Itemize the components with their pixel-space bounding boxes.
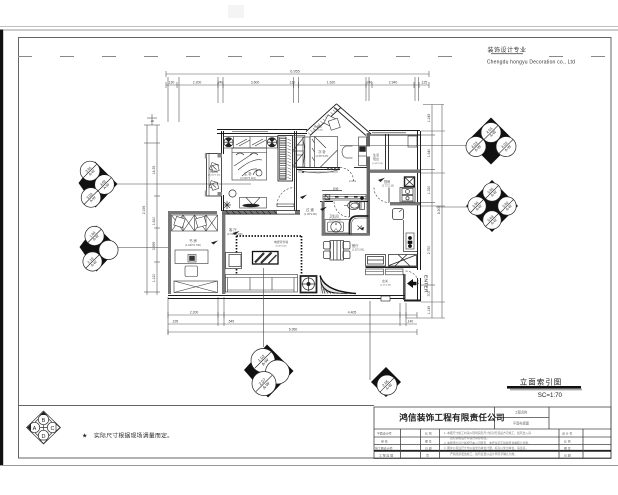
svg-text:日 期: 日 期 xyxy=(564,453,571,458)
svg-text:电视背景墙: 电视背景墙 xyxy=(274,240,288,244)
svg-text:比 例: 比 例 xyxy=(564,439,571,444)
svg-text:厨房: 厨房 xyxy=(384,179,390,184)
svg-text:次 卧: 次 卧 xyxy=(318,149,326,154)
svg-text:主 卧: 主 卧 xyxy=(244,171,252,176)
svg-text:书 房: 书 房 xyxy=(189,238,197,243)
svg-text:休闲角: 休闲角 xyxy=(314,125,322,129)
svg-text:6.950: 6.950 xyxy=(289,328,298,332)
svg-text:1.145: 1.145 xyxy=(427,306,431,315)
svg-text:日 期: 日 期 xyxy=(425,446,432,451)
svg-text:阳台: 阳台 xyxy=(373,156,379,161)
svg-text:(1.05*2.80): (1.05*2.80) xyxy=(304,212,317,216)
svg-text:C: C xyxy=(51,426,55,432)
svg-text:装饰设计专业: 装饰设计专业 xyxy=(487,46,526,54)
svg-text:审 核: 审 核 xyxy=(381,439,388,444)
svg-text:(1.52*2.60): (1.52*2.60) xyxy=(329,219,341,222)
svg-text:14.35: 14.35 xyxy=(152,166,156,175)
svg-text:.130: .130 xyxy=(289,81,296,85)
svg-text:(1.30*1.90): (1.30*1.90) xyxy=(352,248,364,251)
svg-text:2.195: 2.195 xyxy=(142,206,146,215)
svg-text:工 程 监 理: 工 程 监 理 xyxy=(379,453,393,458)
svg-text:★: ★ xyxy=(82,433,88,440)
svg-text:.130: .130 xyxy=(168,81,175,85)
svg-text:D: D xyxy=(42,434,46,440)
svg-text:1.330: 1.330 xyxy=(427,186,431,195)
svg-text:2.200: 2.200 xyxy=(193,81,202,85)
svg-text:工程名称: 工程名称 xyxy=(515,410,529,415)
svg-text:A: A xyxy=(33,426,37,432)
svg-text:.20: .20 xyxy=(150,119,155,123)
svg-text:(1.72*2.10): (1.72*2.10) xyxy=(382,184,394,187)
svg-text:B: B xyxy=(42,418,46,424)
svg-text:2.750: 2.750 xyxy=(427,246,431,255)
svg-text:页: 页 xyxy=(426,454,429,458)
svg-text:3. 图中に标注尺寸均以毫米为单位计量，标高以米为单位，请注: 3. 图中に标注尺寸均以毫米为单位计量，标高以米为单位，请注意。 xyxy=(444,446,528,450)
svg-text:设 计 号: 设 计 号 xyxy=(562,431,572,436)
svg-text:餐厅: 餐厅 xyxy=(352,243,359,248)
svg-text:(3.00*0.30): (3.00*0.30) xyxy=(276,245,287,247)
svg-text:1.810: 1.810 xyxy=(152,217,156,226)
svg-text:3.995: 3.995 xyxy=(152,242,156,251)
svg-text:鸿信装饰工程有限责任公司: 鸿信装饰工程有限责任公司 xyxy=(399,412,505,423)
svg-text:图 号: 图 号 xyxy=(564,446,571,451)
svg-text:.195: .195 xyxy=(172,320,179,324)
svg-text:严禁随意更改施工，如有变更以设计师签字确认为准。: 严禁随意更改施工，如有变更以设计师签字确认为准。 xyxy=(450,452,517,456)
svg-text:平面布置图: 平面布置图 xyxy=(513,421,529,426)
svg-text:(0.620*2.60): (0.620*2.60) xyxy=(208,175,220,177)
svg-text:比 例: 比 例 xyxy=(425,431,432,436)
svg-text:1.620: 1.620 xyxy=(327,81,336,85)
svg-text:图 号: 图 号 xyxy=(425,439,432,444)
svg-text:2.940: 2.940 xyxy=(389,81,398,85)
svg-text:2. 本图纸の设计版权归本公司所有，未经许可不得擅自复制转让: 2. 本图纸の设计版权归本公司所有，未经许可不得擅自复制转让使用。 xyxy=(444,441,531,445)
svg-text:(2.56*3.05): (2.56*3.05) xyxy=(316,154,329,158)
svg-text:(0.60*0.60): (0.60*0.60) xyxy=(313,129,323,131)
svg-text:.125: .125 xyxy=(421,81,428,85)
svg-text:1.245: 1.245 xyxy=(427,114,431,123)
svg-text:1.640: 1.640 xyxy=(427,149,431,158)
svg-text:3.600: 3.600 xyxy=(251,81,260,85)
svg-text:2.200: 2.200 xyxy=(190,311,199,315)
svg-text:平面设计师: 平面设计师 xyxy=(377,431,392,436)
svg-text:.545: .545 xyxy=(228,320,235,324)
svg-text:(3.340*3.110): (3.340*3.110) xyxy=(240,176,256,180)
svg-text:玄关: 玄关 xyxy=(382,278,388,283)
svg-text:Chengdu hongyu Decoration co.,: Chengdu hongyu Decoration co., Ltd xyxy=(487,60,575,66)
svg-text:及时通知设计师进行调整修改。: 及时通知设计师进行调整修改。 xyxy=(450,436,489,440)
svg-text:1.120: 1.120 xyxy=(152,274,156,283)
svg-text:(1.10*1.55): (1.10*1.55) xyxy=(372,163,383,165)
svg-text:1. 本图尺寸施工时请以现场实际尺寸核对无误后方可施工，如有: 1. 本图尺寸施工时请以现场实际尺寸核对无误后方可施工，如有出入请 xyxy=(444,431,531,435)
svg-text:SC=1:70: SC=1:70 xyxy=(538,392,563,399)
svg-text:过 道: 过 道 xyxy=(306,207,314,212)
svg-text:立面索引图: 立面索引图 xyxy=(520,377,563,387)
svg-text:ENTER: ENTER xyxy=(423,275,429,293)
svg-text:4.405: 4.405 xyxy=(348,311,357,315)
svg-text:.140: .140 xyxy=(407,320,414,324)
svg-text:6.955: 6.955 xyxy=(290,70,300,74)
svg-text:实际尺寸根据现场调量而定。: 实际尺寸根据现场调量而定。 xyxy=(94,432,173,440)
svg-text:休闲台: 休闲台 xyxy=(210,170,219,174)
svg-text:2.051: 2.051 xyxy=(349,179,356,183)
svg-text:客 厅: 客 厅 xyxy=(229,227,237,232)
svg-text:(1.10*2.40): (1.10*2.40) xyxy=(380,284,391,286)
svg-text:施工图设计师: 施工图设计师 xyxy=(375,446,392,451)
svg-text:(1.940*2.740): (1.940*2.740) xyxy=(185,243,201,247)
